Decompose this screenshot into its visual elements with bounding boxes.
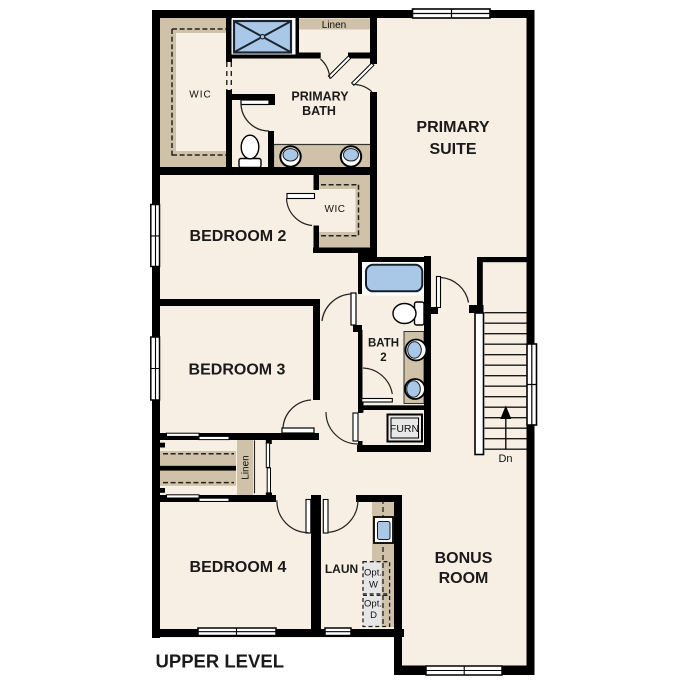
svg-text:Linen: Linen [241, 455, 252, 479]
svg-text:PRIMARY: PRIMARY [291, 90, 349, 104]
svg-text:Opt.: Opt. [364, 568, 382, 579]
svg-text:W: W [369, 580, 378, 591]
svg-text:D: D [370, 610, 377, 621]
svg-text:BATH: BATH [302, 104, 336, 118]
svg-text:BEDROOM 4: BEDROOM 4 [190, 559, 287, 576]
svg-text:PRIMARY: PRIMARY [416, 119, 490, 136]
svg-text:2: 2 [380, 352, 386, 364]
svg-text:UPPER LEVEL: UPPER LEVEL [156, 651, 285, 672]
svg-text:WIC: WIC [325, 204, 346, 215]
svg-text:BATH: BATH [368, 338, 399, 350]
svg-text:BONUS: BONUS [435, 550, 493, 567]
svg-text:ROOM: ROOM [439, 570, 489, 587]
svg-text:WIC: WIC [189, 90, 211, 101]
svg-text:SUITE: SUITE [429, 141, 476, 158]
svg-text:BEDROOM 2: BEDROOM 2 [190, 228, 287, 245]
svg-text:Dn: Dn [498, 453, 512, 465]
svg-text:FURN: FURN [390, 423, 419, 435]
svg-text:Opt.: Opt. [364, 599, 382, 610]
svg-text:BEDROOM 3: BEDROOM 3 [189, 362, 286, 379]
svg-text:Linen: Linen [322, 20, 346, 31]
svg-text:LAUN: LAUN [325, 562, 358, 576]
